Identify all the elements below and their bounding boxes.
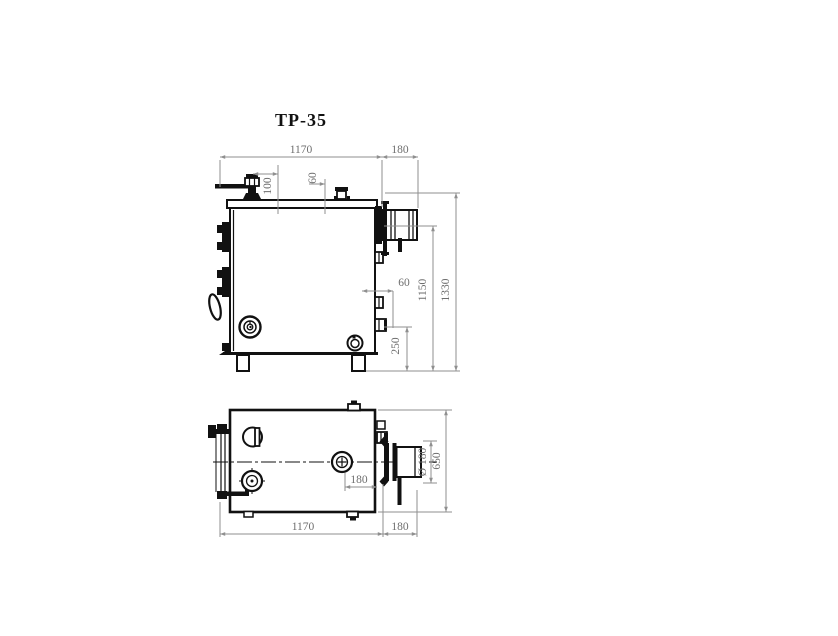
flue-barrel bbox=[382, 210, 417, 240]
flue-pipe-top bbox=[380, 437, 422, 506]
drawing-page: ТР-35 bbox=[0, 0, 838, 636]
leg-tab-left bbox=[244, 512, 253, 518]
door-handle-loop bbox=[207, 293, 223, 321]
pipe-horizontal bbox=[221, 492, 249, 497]
hinge-tab bbox=[217, 270, 222, 278]
filler-cap bbox=[334, 187, 350, 200]
drain-knob bbox=[348, 336, 363, 351]
valve-dot bbox=[251, 480, 254, 483]
tab-top-tick bbox=[351, 401, 357, 405]
cap-neck bbox=[337, 191, 346, 199]
cap-lug bbox=[334, 196, 337, 200]
flue-flange-bar bbox=[384, 443, 389, 481]
damper-end bbox=[381, 252, 389, 255]
hinge-upper bbox=[222, 222, 230, 252]
dim-side-flue-length: 180 bbox=[391, 144, 409, 156]
valve-flange bbox=[243, 193, 261, 199]
valve-handle-top bbox=[243, 428, 262, 447]
door-hinges-and-handle bbox=[207, 222, 230, 351]
dim-flue-axis-height: 1150 bbox=[417, 278, 429, 301]
leg-tab-tick bbox=[350, 517, 356, 521]
safety-valve bbox=[215, 174, 261, 199]
leg-right bbox=[352, 355, 365, 371]
dim-side-body-width: 1170 bbox=[290, 144, 313, 156]
hinge-tab bbox=[217, 287, 222, 295]
sight-dot bbox=[249, 326, 251, 328]
filler-cap-top bbox=[332, 452, 352, 472]
hinge-tab bbox=[217, 242, 222, 250]
top-view: 650 Ø 180 180 1170 180 bbox=[208, 401, 452, 538]
flue-drain-stub bbox=[398, 238, 402, 252]
leg-left bbox=[237, 355, 249, 371]
leg-tab-right bbox=[347, 512, 358, 518]
tab-top bbox=[348, 404, 360, 411]
hinge-lower bbox=[222, 267, 230, 297]
stub-top-1 bbox=[377, 421, 385, 429]
hinge-block-top bbox=[217, 424, 227, 432]
dim-valve-offset: 100 bbox=[262, 177, 274, 195]
valve-body bbox=[245, 178, 259, 186]
lid bbox=[227, 200, 377, 208]
burner-sight-glass bbox=[240, 317, 261, 338]
flue-drain-top bbox=[398, 477, 402, 505]
side-view: 1170 180 100 60 60 250 1150 1330 bbox=[207, 144, 460, 371]
pipe-flange-top bbox=[208, 425, 216, 438]
stub-end bbox=[384, 320, 387, 330]
dim-stub-gap: 60 bbox=[398, 277, 410, 289]
damper-rod bbox=[383, 201, 387, 256]
dim-cap-offset: 60 bbox=[307, 172, 319, 184]
technical-drawing: ТР-35 bbox=[0, 0, 838, 636]
handle-bar bbox=[255, 428, 260, 446]
hinge-tab bbox=[217, 225, 222, 233]
cap-lug bbox=[347, 196, 350, 200]
dim-top-flue-length: 180 bbox=[391, 521, 409, 533]
dim-fitting-offset: 180 bbox=[350, 474, 368, 486]
dim-flue-diameter: Ø 180 bbox=[417, 448, 429, 477]
flue-collar bbox=[375, 206, 382, 244]
latch-block bbox=[222, 343, 230, 351]
dim-total-height: 1330 bbox=[440, 278, 452, 301]
dim-top-body-width: 1170 bbox=[292, 521, 315, 533]
drawing-title: ТР-35 bbox=[275, 110, 327, 130]
dim-drain-height: 250 bbox=[390, 337, 402, 355]
valve-stem bbox=[248, 186, 256, 193]
dim-body-depth: 650 bbox=[431, 452, 443, 470]
knob-tick bbox=[353, 336, 356, 339]
flue-pipe-side bbox=[375, 201, 417, 256]
boiler-body-top bbox=[230, 410, 375, 512]
